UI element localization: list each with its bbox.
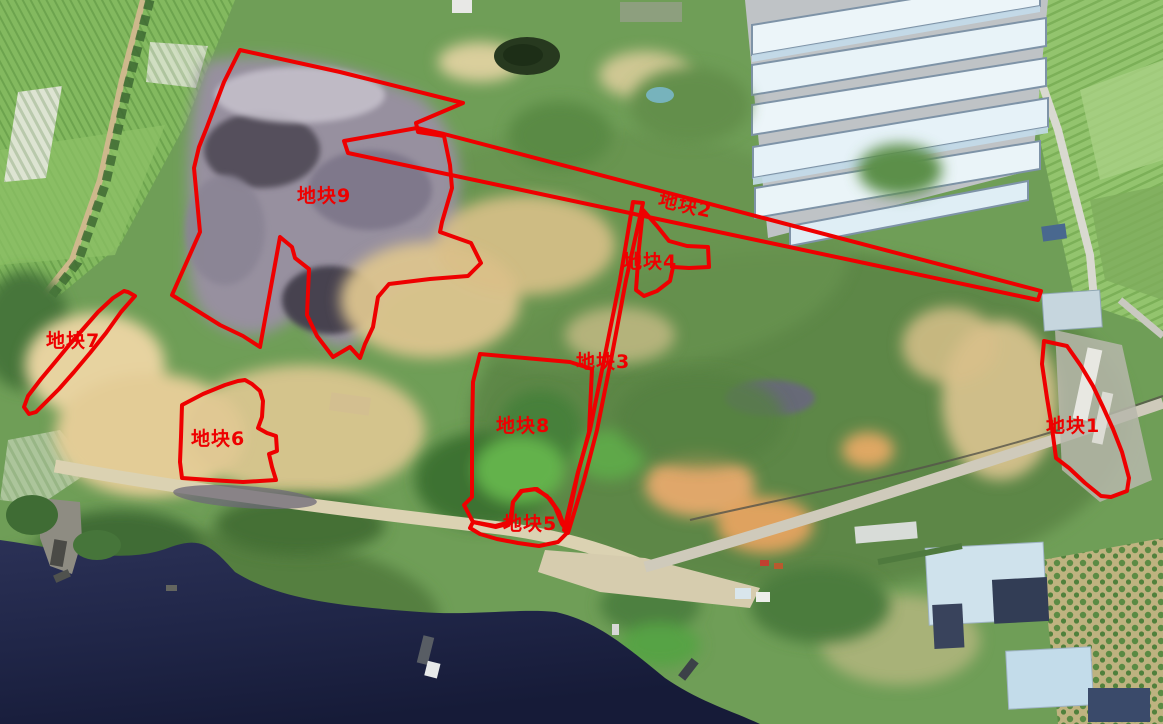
- parcel-8-label: 地块8: [496, 416, 550, 436]
- parcel-7-label: 地块7: [46, 331, 100, 351]
- parcel-5-label: 地块5: [503, 514, 557, 534]
- parcel-labels: 地块1地块2地块3地块4地块5地块6地块7地块8地块9: [0, 0, 1163, 724]
- parcel-4-label: 地块4: [623, 252, 677, 272]
- parcel-1-label: 地块1: [1046, 416, 1100, 436]
- parcel-3-label: 地块3: [576, 352, 630, 372]
- parcel-6-label: 地块6: [191, 429, 245, 449]
- satellite-map: 地块1地块2地块3地块4地块5地块6地块7地块8地块9: [0, 0, 1163, 724]
- parcel-9-label: 地块9: [297, 186, 351, 206]
- parcel-2-label: 地块2: [657, 190, 714, 222]
